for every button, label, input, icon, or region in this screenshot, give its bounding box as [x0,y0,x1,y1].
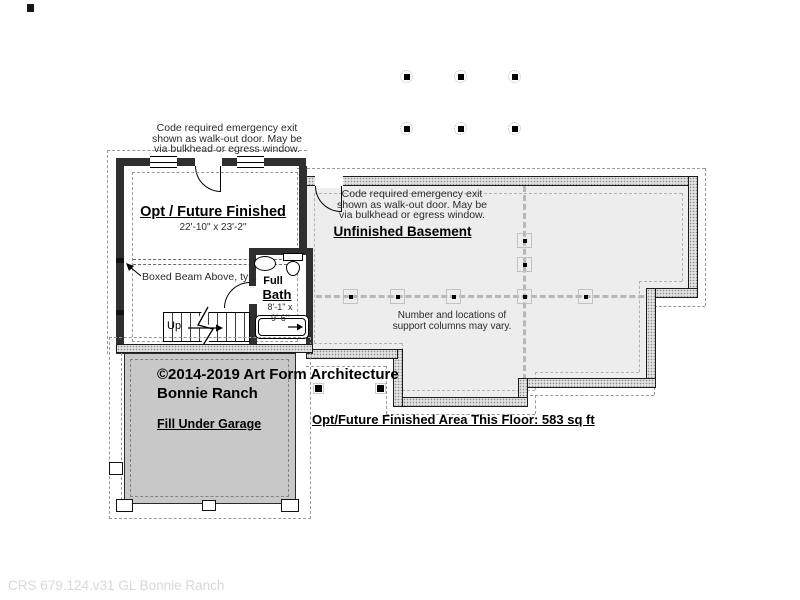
wall-tick [116,258,124,263]
slab-edge-line [535,372,639,373]
window [237,156,264,168]
pilaster [116,499,133,512]
column-marker [508,122,521,135]
footing-line [705,168,706,306]
note-line: Number and locations of [392,311,512,322]
foundation-wall-bottom-center [393,397,528,407]
pilaster [202,500,216,511]
column-marker [400,70,413,83]
note-line: support columns may vary. [392,322,512,333]
toilet-tank [283,253,303,261]
opt-room-dims: 22'-10" x 23'-2" [138,222,288,233]
column-dot-icon [523,295,527,299]
slab-edge-line [314,193,315,343]
copyright-line-1: ©2014-2019 Art Form Architecture [157,366,467,383]
exterior-wall-left [116,158,124,354]
support-column-marker [517,289,532,304]
basement-label: Unfinished Basement [330,224,475,239]
boxed-beam-note: Boxed Beam Above, typ. [142,271,267,283]
sink [254,256,276,271]
column-marker [508,70,521,83]
floor-plan-sheet: Up Code required emergency exit shown as… [0,0,800,600]
emergency-exit-note-right: Code required emergency exit shown as wa… [332,189,492,221]
footing-line [107,150,108,354]
slab-edge-line [314,343,402,344]
column-marker [454,122,467,135]
bath-dim-2: 9'-6" [258,313,302,323]
column-marker [454,70,467,83]
boxed-beam-arrow-icon [124,262,144,278]
foundation-wall-bottom-right [518,378,656,388]
column-post-icon [458,126,464,132]
column-post-icon [404,74,410,80]
garage-wall-top [116,344,313,353]
opt-room-label: Opt / Future Finished [138,204,288,220]
foundation-wall-right-lower [646,288,656,388]
beam-line [307,295,689,298]
column-post-icon [512,126,518,132]
slab-edge-line [682,193,683,281]
column-post-icon [458,74,464,80]
emergency-exit-note-left: Code required emergency exit shown as wa… [147,123,307,155]
foundation-wall-bottom-left [306,349,398,359]
support-column-marker [578,289,593,304]
area-note: Opt/Future Finished Area This Floor: 583… [312,412,612,427]
window [150,156,177,168]
column-dot-icon [523,263,527,267]
pilaster [109,462,123,475]
interior-wall-divider [299,166,307,252]
slab-edge-line [639,281,682,282]
note-line: Code required emergency exit [332,189,492,200]
footing-line [297,168,705,169]
sheet-footer-text: CRS 679.124.v31 GL Bonnie Ranch [8,578,308,593]
slab-edge-line [402,390,535,391]
foundation-wall-right [688,176,698,298]
registration-mark [27,4,34,12]
column-dot-icon [396,295,400,299]
wall-tick [116,310,124,315]
support-column-marker [517,233,532,248]
copyright-line-2: Bonnie Ranch [157,385,357,402]
column-dot-icon [349,295,353,299]
column-dot-icon [584,295,588,299]
up-direction-arrow-icon [188,322,224,334]
column-dot-icon [523,239,527,243]
note-line: via bulkhead or egress window. [147,144,307,155]
support-column-marker [390,289,405,304]
footing-line [121,353,122,505]
bath-label-full: Full [250,275,296,287]
basement-floor [525,296,649,382]
column-post-icon [512,74,518,80]
bath-wall-top [249,248,313,255]
bath-label: Bath [249,287,305,302]
stairs-up-label: Up [167,320,189,332]
garage-label: Fill Under Garage [157,417,307,431]
support-column-marker [446,289,461,304]
column-post-icon [404,126,410,132]
note-line: via bulkhead or egress window. [332,210,492,221]
column-marker [377,385,384,392]
column-marker [400,122,413,135]
support-columns-note: Number and locations of support columns … [392,311,512,332]
footing-line [654,306,705,307]
support-column-marker [343,289,358,304]
support-column-marker [517,257,532,272]
note-line: Code required emergency exit [147,123,307,134]
column-dot-icon [452,295,456,299]
bath-dim-1: 8'-1" x [258,302,302,312]
pilaster [281,499,299,512]
foundation-wall-top [304,176,698,186]
footing-line [525,395,654,396]
